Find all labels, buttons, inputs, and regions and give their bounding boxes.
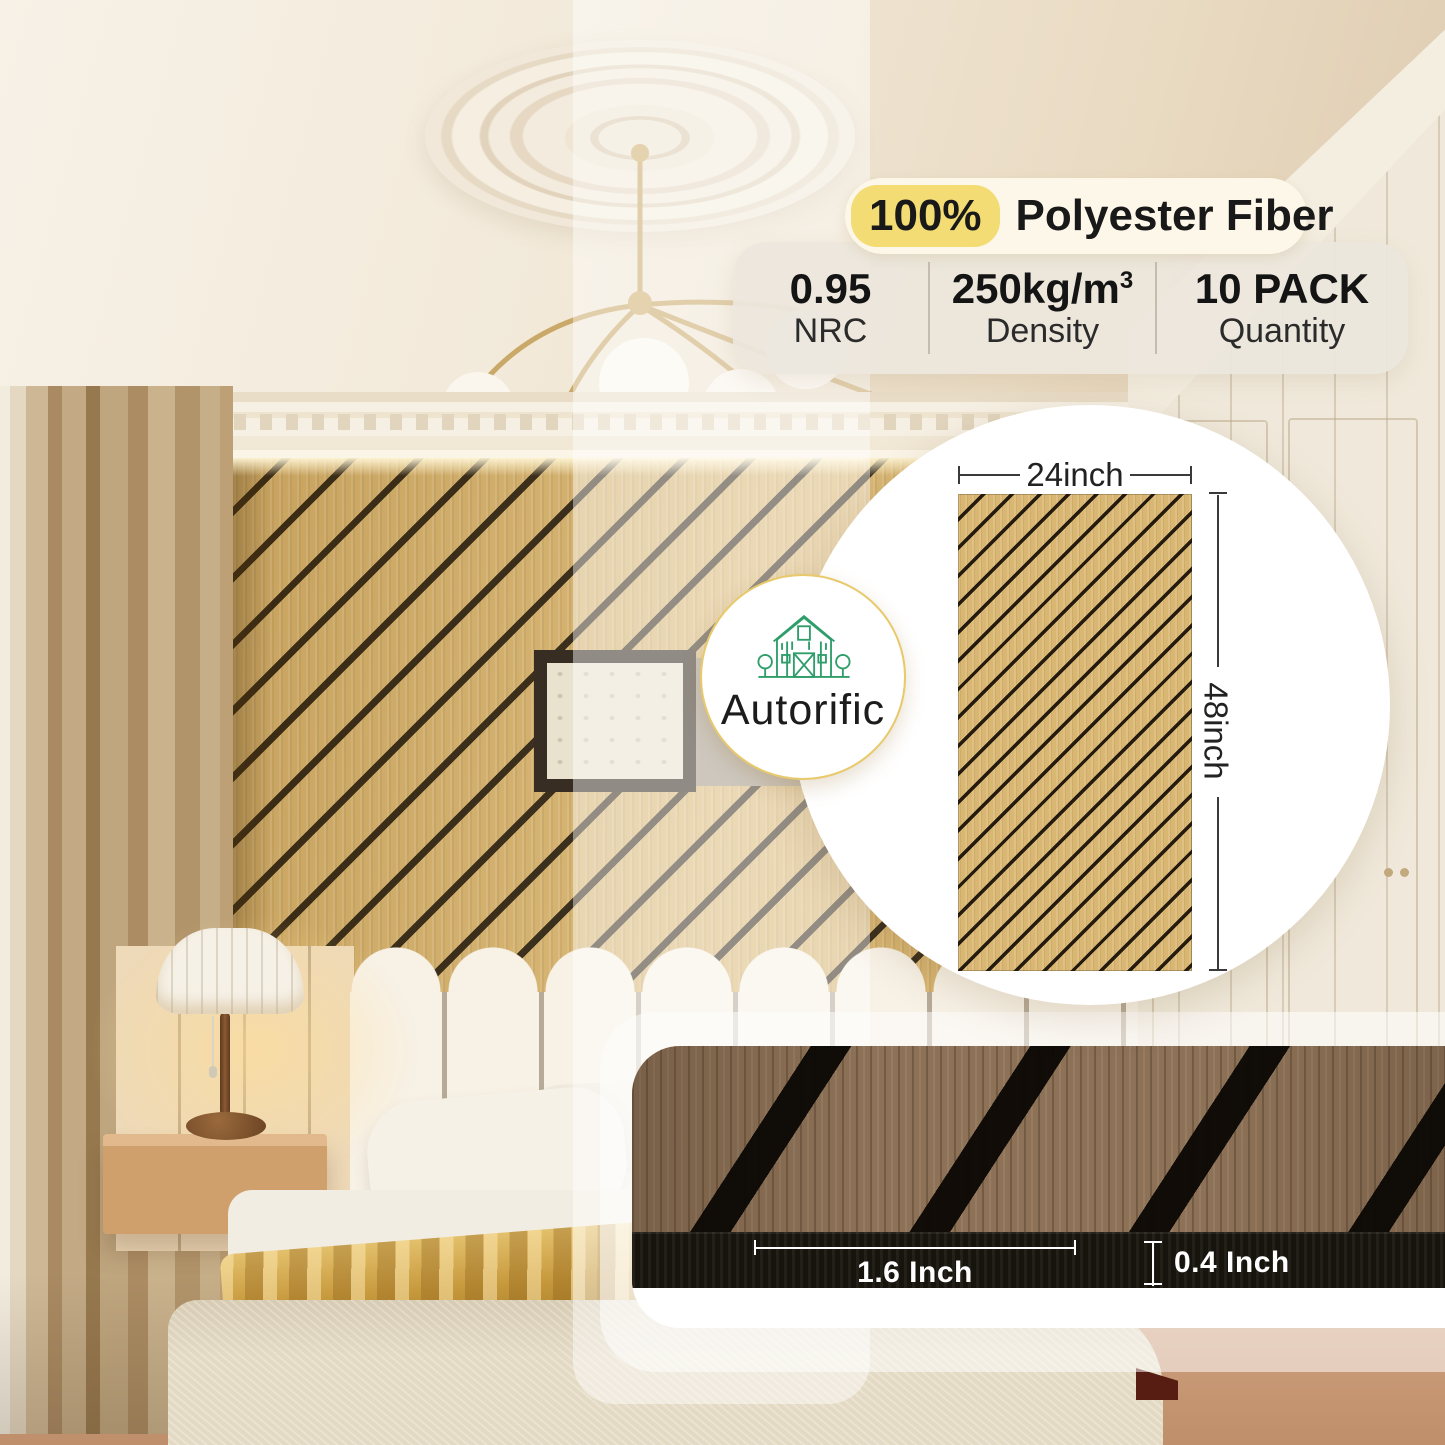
slat-closeup-photo: 1.6 Inch 0.4 Inch (632, 1046, 1445, 1286)
product-image: 1.6 Inch 0.4 Inch 24inch 48inch (0, 0, 1445, 1445)
thickness-label: 0.4 Inch (1174, 1246, 1290, 1280)
lamp-pull-chain (212, 1016, 214, 1068)
lamp-base (186, 1112, 266, 1140)
stat-quantity: 10 PACK Quantity (1157, 268, 1407, 348)
dimension-tick (1209, 492, 1227, 494)
stat-nrc: 0.95 NRC (733, 268, 928, 348)
dimension-line (960, 474, 1020, 476)
curtains (0, 386, 233, 1434)
lamp-stem (220, 1012, 230, 1116)
stat-value: 250kg/m3 (952, 268, 1133, 310)
stat-label: Density (986, 314, 1099, 348)
width-dimension: 24inch (958, 457, 1192, 493)
dimension-tick (1144, 1283, 1162, 1285)
slat-width-dimension-line (755, 1247, 1075, 1249)
wardrobe-knob (1384, 868, 1393, 877)
height-label: 48inch (1190, 667, 1242, 795)
acoustic-panel-swatch (958, 494, 1192, 971)
dimension-tick (1074, 1240, 1076, 1255)
dimension-tick (754, 1240, 756, 1255)
brand-name: Autorific (702, 686, 904, 735)
dimension-tick (1209, 969, 1227, 971)
height-dimension-line (1217, 797, 1219, 969)
width-label: 24inch (1026, 456, 1123, 494)
percent-highlight: 100% (851, 185, 1000, 247)
wardrobe-knob (1400, 868, 1409, 877)
slat-width-label: 1.6 Inch (755, 1256, 1075, 1290)
dimension-tick (1190, 466, 1192, 484)
slat-closeup-card: 1.6 Inch 0.4 Inch (632, 1046, 1445, 1328)
stat-value: 0.95 (790, 268, 872, 310)
spec-stats-card: 0.95 NRC 250kg/m3 Density 10 PACK Quanti… (733, 242, 1408, 374)
dimension-line (1130, 474, 1190, 476)
stat-density: 250kg/m3 Density (930, 268, 1155, 348)
stat-label: Quantity (1219, 314, 1346, 348)
barn-icon (748, 606, 860, 682)
stat-value: 10 PACK (1195, 268, 1369, 310)
thickness-dimension-line (1152, 1242, 1154, 1286)
brand-logo-badge: Autorific (700, 574, 906, 780)
dimension-tick (1144, 1241, 1162, 1243)
stat-label: NRC (794, 314, 868, 348)
height-dimension-line (1217, 495, 1219, 667)
lamp-pull-ball (209, 1066, 217, 1078)
material-title: Polyester Fiber (1016, 191, 1334, 241)
material-badge: 100% Polyester Fiber (845, 178, 1307, 254)
